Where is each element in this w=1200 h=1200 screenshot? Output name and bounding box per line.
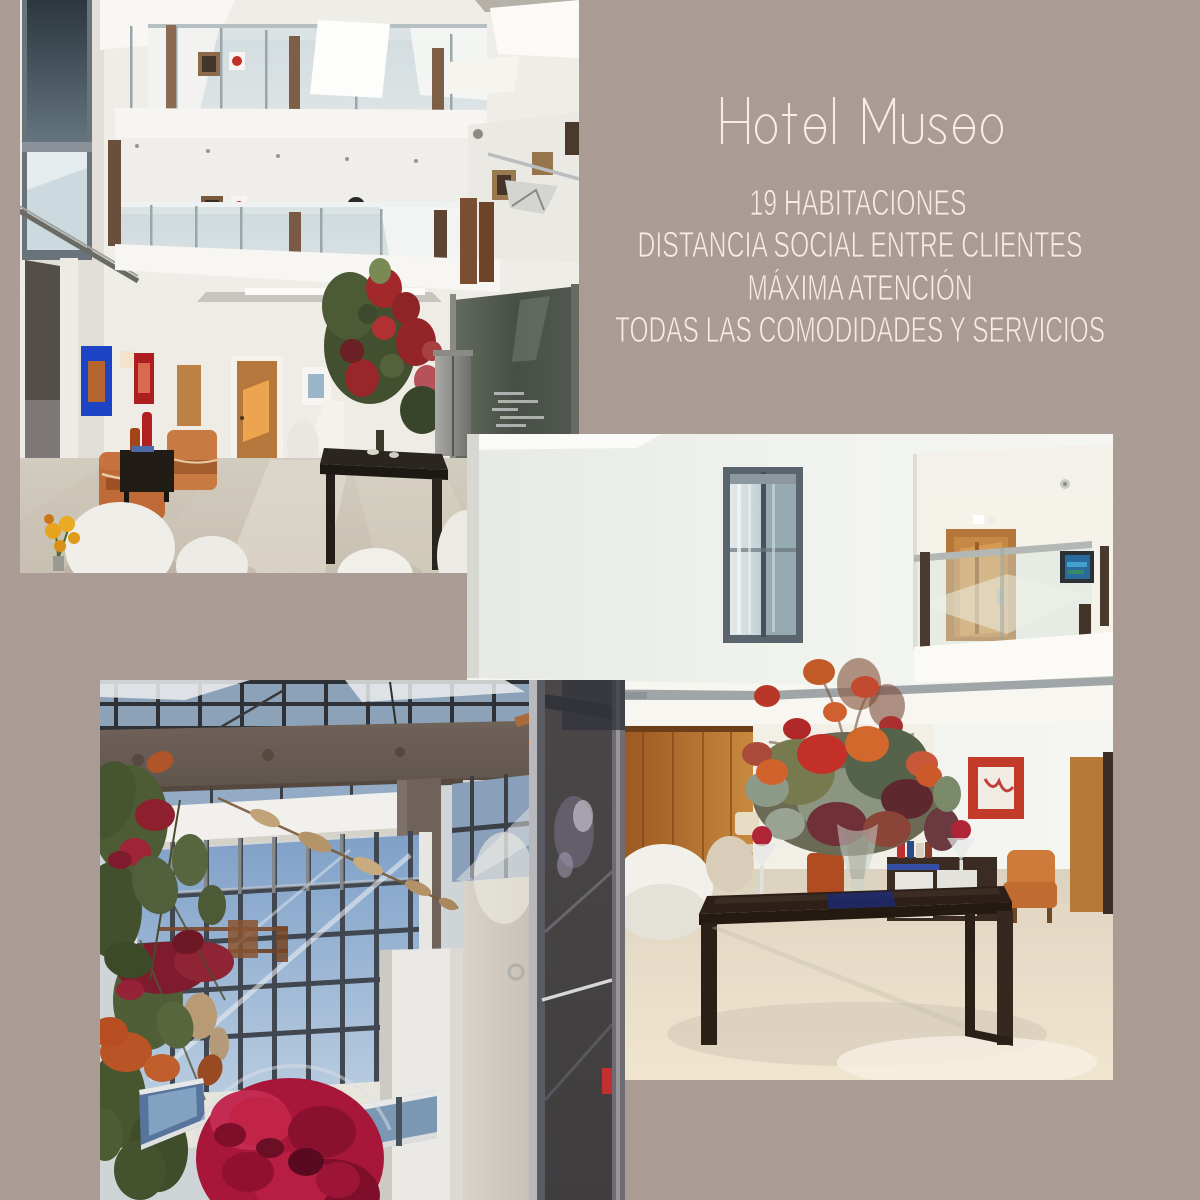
svg-text:TODAS LAS COMODIDADES Y SERVIC: TODAS LAS COMODIDADES Y SERVICIOS <box>615 309 1105 350</box>
svg-text:19 HABITACIONES: 19 HABITACIONES <box>750 182 967 223</box>
svg-text:DISTANCIA SOCIAL ENTRE CLIENTE: DISTANCIA SOCIAL ENTRE CLIENTES <box>638 224 1083 265</box>
svg-text:MÁXIMA ATENCIÓN: MÁXIMA ATENCIÓN <box>748 267 973 308</box>
